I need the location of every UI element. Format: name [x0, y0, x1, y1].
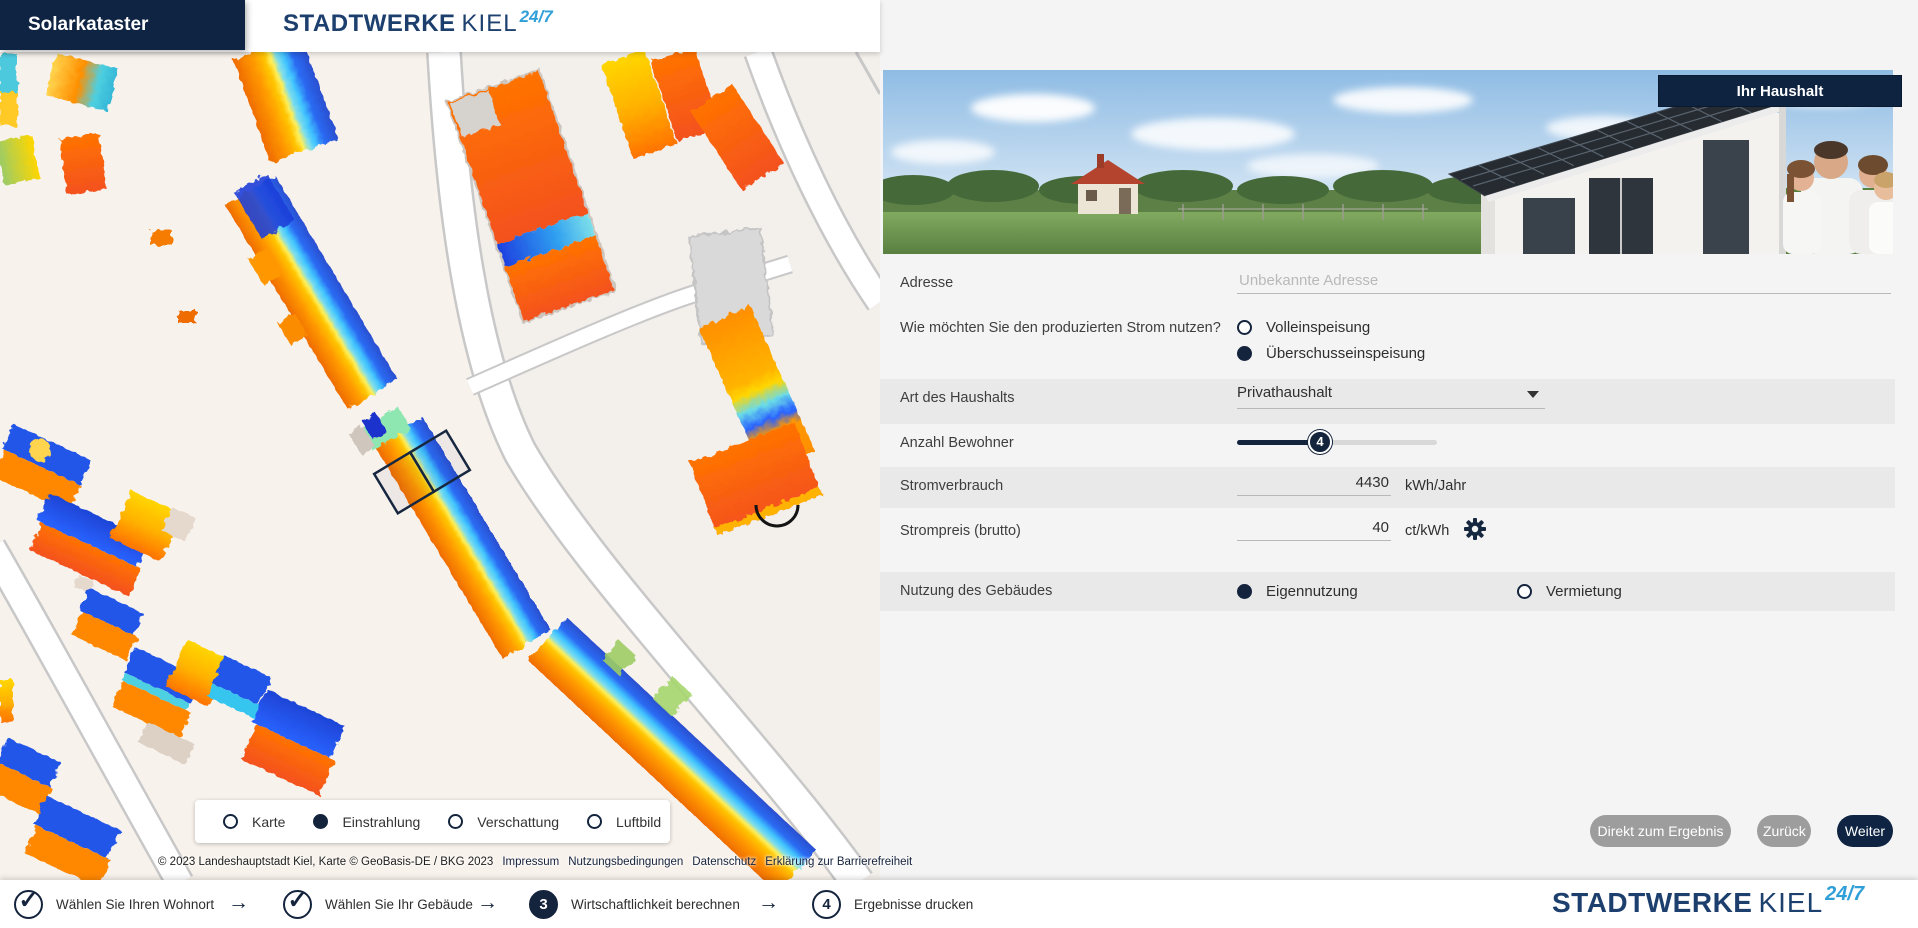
address-input[interactable] — [1237, 270, 1891, 294]
next-button[interactable]: Weiter — [1837, 815, 1893, 847]
address-label: Adresse — [900, 275, 953, 291]
price-label: Strompreis (brutto) — [900, 523, 1021, 539]
slider-thumb[interactable]: 4 — [1308, 430, 1332, 454]
household-type-label: Art des Haushalts — [900, 390, 1014, 406]
app-title: Solarkataster — [0, 0, 245, 50]
direct-to-result-button[interactable]: Direkt zum Ergebnis — [1590, 815, 1731, 847]
step-label: Wählen Sie Ihren Wohnort — [56, 897, 214, 912]
step-label: Wirtschaftlichkeit berechnen — [571, 897, 740, 912]
chevron-down-icon — [1527, 391, 1539, 398]
radio-icon[interactable] — [1517, 584, 1532, 599]
radio-icon[interactable] — [587, 814, 602, 829]
solar-map[interactable] — [0, 52, 880, 883]
radio-icon[interactable] — [313, 814, 328, 829]
radio-label: Überschusseinspeisung — [1266, 345, 1425, 362]
footer-bar: ✓ Wählen Sie Ihren Wohnort → ✓ Wählen Si… — [0, 880, 1918, 928]
consumption-input[interactable] — [1237, 472, 1391, 496]
arrow-right-icon: → — [758, 891, 779, 915]
logo-247-icon: 24/7 — [1825, 883, 1864, 905]
layer-label: Verschattung — [477, 814, 559, 830]
copyright-text: © 2023 Landeshauptstadt Kiel, Karte © Ge… — [158, 856, 493, 868]
check-circle-icon: ✓ — [283, 890, 312, 919]
step-label: Wählen Sie Ihr Gebäude — [325, 897, 473, 912]
step-3-wirtschaftlichkeit[interactable]: 3 Wirtschaftlichkeit berechnen — [529, 880, 740, 928]
link-impressum[interactable]: Impressum — [502, 856, 559, 868]
arrow-right-icon: → — [477, 891, 498, 915]
radio-label: Eigennutzung — [1266, 583, 1358, 600]
stadtwerke-kiel-footer-logo: STADTWERKEKIEL24/7 — [1552, 887, 1864, 919]
panel-badge: Ihr Haushalt — [1658, 75, 1902, 107]
layer-label: Karte — [252, 814, 285, 830]
logo-bold: STADTWERKE — [283, 10, 456, 37]
usage-question-label: Wie möchten Sie den produzierten Strom n… — [900, 320, 1221, 336]
radio-icon[interactable] — [223, 814, 238, 829]
radio-vermietung[interactable]: Vermietung — [1517, 583, 1622, 600]
household-type-select[interactable]: Privathaushalt — [1237, 384, 1545, 409]
step-label: Ergebnisse drucken — [854, 897, 973, 912]
price-input[interactable] — [1237, 517, 1391, 541]
step-number-circle: 4 — [812, 890, 841, 919]
layer-option-einstrahlung[interactable]: Einstrahlung — [313, 814, 420, 830]
step-1-wohnort[interactable]: ✓ Wählen Sie Ihren Wohnort — [14, 880, 214, 928]
radio-icon[interactable] — [1237, 320, 1252, 335]
map-copyright: © 2023 Landeshauptstadt Kiel, Karte © Ge… — [158, 856, 870, 868]
radio-volleinspeisung[interactable]: Volleinspeisung — [1237, 319, 1370, 336]
price-unit: ct/kWh — [1405, 523, 1449, 539]
solarkataster-app: Karte Einstrahlung Verschattung Luftbild… — [0, 0, 1918, 928]
arrow-right-icon: → — [228, 891, 249, 915]
consumption-label: Stromverbrauch — [900, 478, 1003, 494]
check-circle-icon: ✓ — [14, 890, 43, 919]
residents-label: Anzahl Bewohner — [900, 435, 1014, 451]
step-number-circle: 3 — [529, 890, 558, 919]
radio-eigennutzung[interactable]: Eigennutzung — [1237, 583, 1358, 600]
radio-label: Vermietung — [1546, 583, 1622, 600]
back-button[interactable]: Zurück — [1757, 815, 1811, 847]
household-panel: Ihr Haushalt Adresse Wie möchten Sie den… — [880, 0, 1918, 880]
consumption-unit: kWh/Jahr — [1405, 478, 1466, 494]
radio-ueberschusseinspeisung[interactable]: Überschusseinspeisung — [1237, 345, 1425, 362]
stadtwerke-kiel-logo: STADTWERKEKIEL24/7 — [283, 10, 553, 38]
gear-icon[interactable] — [1463, 517, 1487, 541]
logo-light: KIEL — [1758, 887, 1823, 918]
link-datenschutz[interactable]: Datenschutz — [692, 856, 756, 868]
layer-label: Einstrahlung — [342, 814, 420, 830]
layer-label: Luftbild — [616, 814, 661, 830]
step-2-gebaeude[interactable]: ✓ Wählen Sie Ihr Gebäude — [283, 880, 473, 928]
select-value: Privathaushalt — [1237, 384, 1332, 401]
radio-icon[interactable] — [1237, 346, 1252, 361]
logo-247-icon: 24/7 — [520, 7, 553, 26]
layer-option-verschattung[interactable]: Verschattung — [448, 814, 559, 830]
radio-icon[interactable] — [448, 814, 463, 829]
logo-light: KIEL — [462, 10, 518, 37]
radio-label: Volleinspeisung — [1266, 319, 1370, 336]
building-use-label: Nutzung des Gebäudes — [900, 583, 1052, 599]
step-4-ergebnisse[interactable]: 4 Ergebnisse drucken — [812, 880, 973, 928]
radio-icon[interactable] — [1237, 584, 1252, 599]
residents-slider[interactable]: 4 — [1237, 430, 1437, 454]
map-layer-selector: Karte Einstrahlung Verschattung Luftbild — [195, 800, 670, 843]
layer-option-luftbild[interactable]: Luftbild — [587, 814, 661, 830]
logo-bold: STADTWERKE — [1552, 887, 1752, 918]
link-nutzungsbedingungen[interactable]: Nutzungsbedingungen — [568, 856, 683, 868]
layer-option-karte[interactable]: Karte — [223, 814, 285, 830]
link-barrierefreiheit[interactable]: Erklärung zur Barrierefreiheit — [765, 856, 912, 868]
